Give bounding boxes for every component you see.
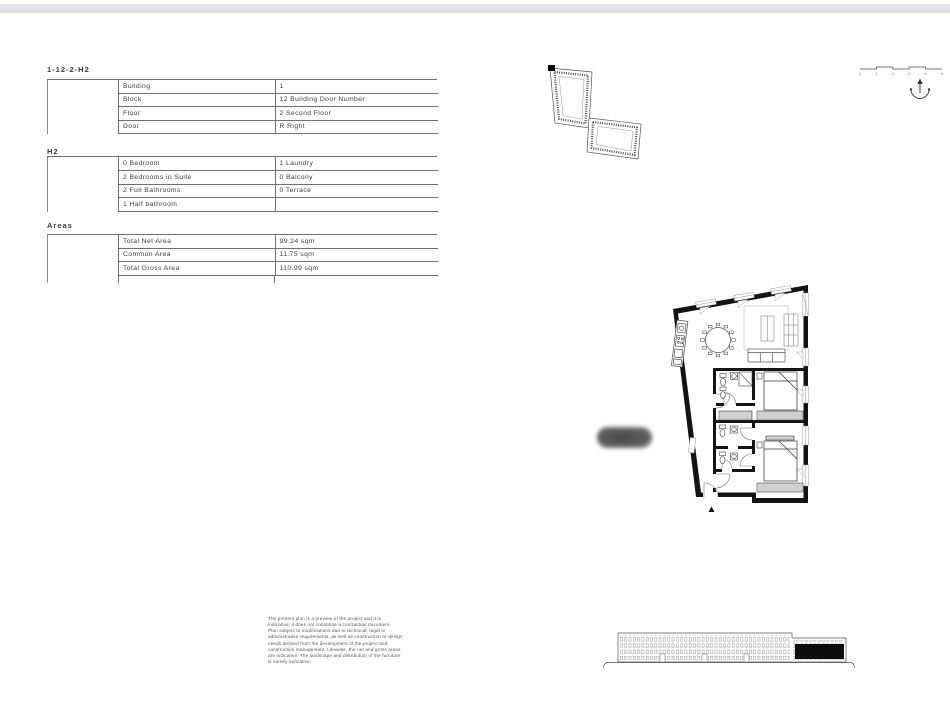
cell-label: 0 Bedroom	[119, 157, 275, 170]
table-empty-row-stub	[118, 276, 438, 283]
cell-value: 110.99 sqm	[275, 262, 438, 275]
cell-label: 2 Full Bathrooms	[119, 185, 275, 198]
ground-line	[603, 663, 855, 668]
bathroom-fixtures	[720, 372, 752, 398]
table-row: 2 Bedrooms in Suite 0 Balcony	[118, 171, 438, 185]
table-row: Total Net Area 99.24 sqm	[118, 235, 438, 249]
unit-code-title: 1-12-2-H2	[47, 65, 90, 74]
site-block-b	[587, 118, 641, 159]
table-row: Door R Right	[118, 121, 438, 135]
floor-plan	[660, 268, 830, 528]
cell-label: Building	[119, 80, 275, 93]
cell-value: 0 Terrace	[275, 185, 438, 198]
disclaimer-text: The present plan is a preview of the pro…	[268, 616, 440, 665]
cell-label: Common Area	[119, 249, 275, 262]
cell-label: 1 Half bathroom	[119, 198, 275, 211]
cell-label: 2 Bedrooms in Suite	[119, 171, 275, 184]
scale-label: 1	[875, 72, 877, 76]
areas-table: Total Net Area 99.24 sqm Common Area 11.…	[47, 234, 437, 283]
table-row: 1 Half bathroom	[118, 198, 438, 212]
scale-bar-line	[860, 67, 942, 69]
table-row: Building 1	[118, 80, 438, 94]
tv-cabinet	[761, 316, 774, 341]
scale-bar: 0 1 2 3 4 5	[858, 64, 944, 78]
unit-highlight-block	[795, 644, 844, 659]
site-block-a	[548, 65, 592, 128]
scale-label: 0	[859, 72, 861, 76]
kitchen-counter	[671, 320, 688, 367]
table-row: 0 Bedroom 1 Laundry	[118, 157, 438, 171]
cell-label: Door	[119, 121, 275, 134]
cell-label: Floor	[119, 107, 275, 120]
cell-value	[275, 198, 438, 211]
door-arc	[716, 393, 752, 489]
cell-value: 12 Building Door Number	[275, 94, 438, 107]
redacted-blob	[597, 427, 652, 448]
building-elevation	[602, 624, 856, 676]
rooms-table: 0 Bedroom 1 Laundry 2 Bedrooms in Suite …	[47, 156, 437, 212]
floor-plan-sheet: { "unit_table": { "title": "1-12-2-H2", …	[0, 0, 950, 713]
bed	[757, 372, 797, 410]
cell-value: R Right	[275, 121, 438, 134]
scale-label: 2	[892, 72, 894, 76]
page-top-band	[0, 4, 950, 13]
cell-value: 1 Laundry	[275, 157, 438, 170]
bathroom-fixtures	[720, 425, 738, 436]
table-row: Floor 2 Second Floor	[118, 107, 438, 121]
cell-value: 99.24 sqm	[275, 235, 438, 248]
cell-label: Total Net Area	[119, 235, 275, 248]
scale-label: 3	[908, 72, 910, 76]
table-row: 2 Full Bathrooms 0 Terrace	[118, 185, 438, 199]
cell-label: Block	[119, 94, 275, 107]
cell-label: Total Gross Area	[119, 262, 275, 275]
unit-location-marker	[548, 65, 555, 71]
entrance-marker	[709, 507, 715, 513]
cell-value: 1	[275, 80, 438, 93]
bed	[757, 441, 797, 481]
cell-value: 0 Balcony	[275, 171, 438, 184]
rooms-table-title: H2	[47, 147, 59, 156]
north-arrow-icon	[906, 78, 934, 102]
unit-info-table: Building 1 Block 12 Building Door Number…	[47, 79, 437, 134]
table-row: Common Area 11.75 sqm	[118, 249, 438, 263]
scale-label: 5	[941, 72, 943, 76]
table-row: Total Gross Area 110.99 sqm	[118, 262, 438, 276]
cell-value: 11.75 sqm	[275, 249, 438, 262]
sofa	[748, 349, 785, 362]
areas-table-title: Areas	[47, 221, 73, 230]
shelf-unit	[784, 314, 798, 346]
dining-table	[701, 323, 736, 357]
site-key-plan	[544, 60, 644, 164]
scale-label: 4	[925, 72, 927, 76]
table-row: Block 12 Building Door Number	[118, 94, 438, 108]
cell-value: 2 Second Floor	[275, 107, 438, 120]
